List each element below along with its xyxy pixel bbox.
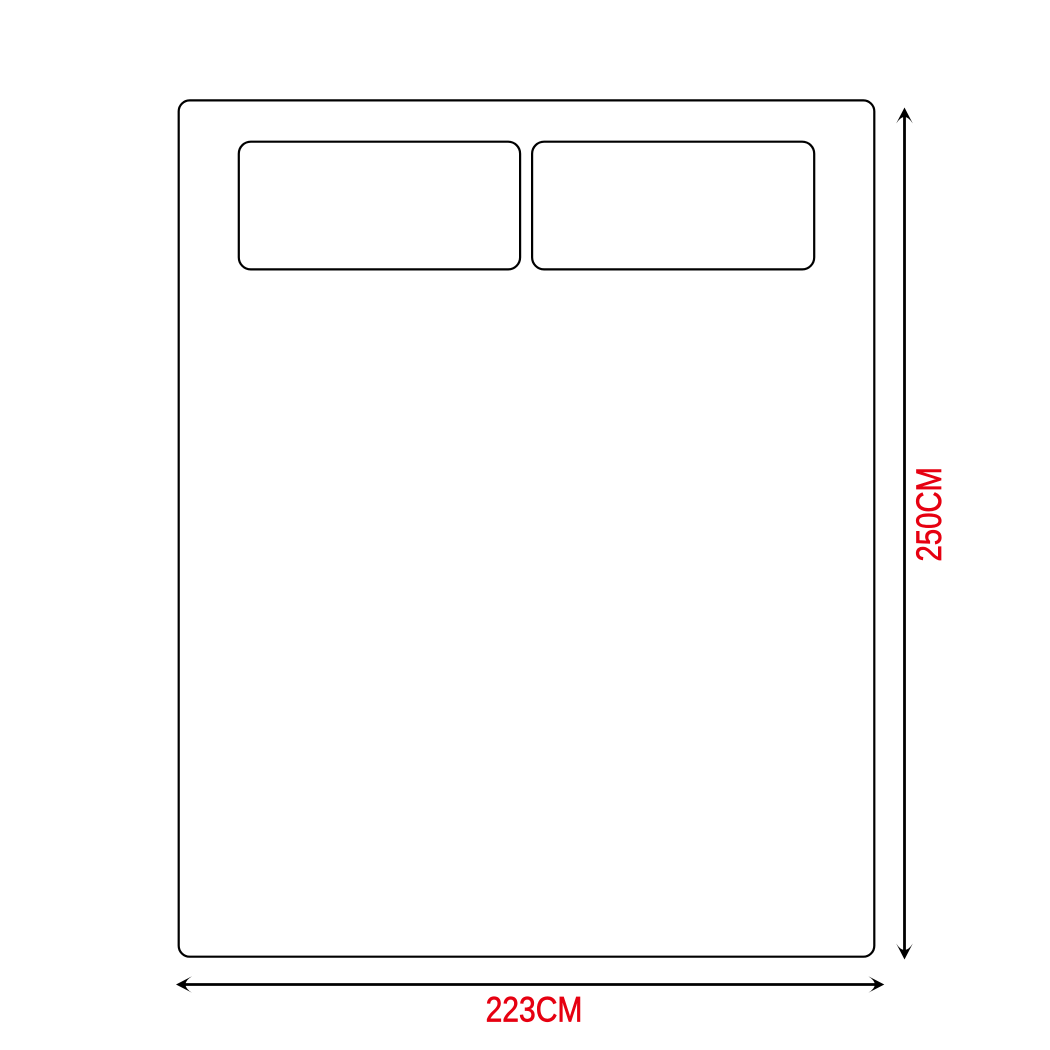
svg-text:223CM: 223CM [486, 989, 583, 1029]
svg-text:250CM: 250CM [909, 467, 948, 561]
